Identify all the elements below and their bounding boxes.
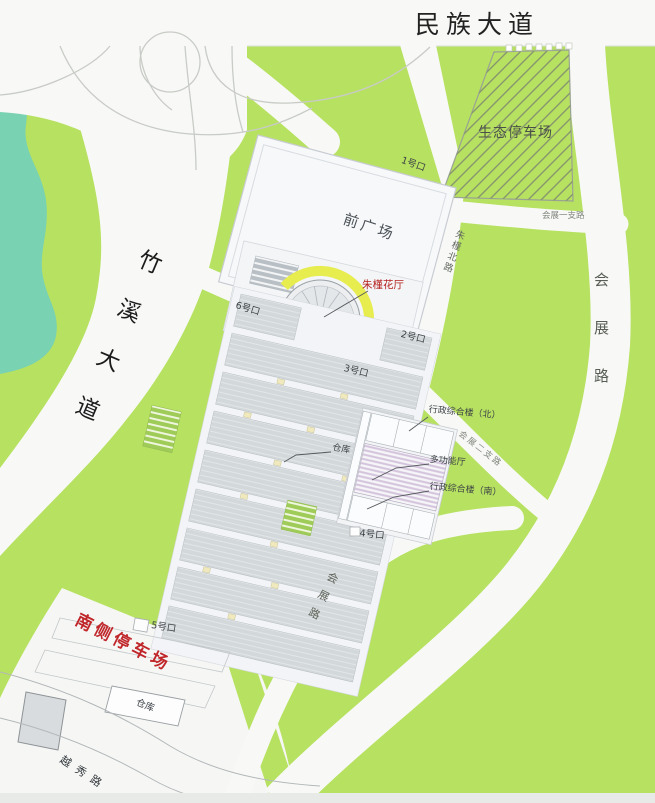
minzu-avenue-road — [0, 0, 655, 46]
bottom-road-strip — [0, 793, 655, 803]
eco-parking-label: 生态停车场 — [478, 126, 553, 140]
huizhan-branch1-label: 会展一支路 — [542, 212, 585, 221]
gate5-marker — [133, 618, 149, 632]
huizhan-branch1-road — [442, 210, 618, 224]
gate4-label: 4号口 — [359, 529, 385, 541]
hedge-east — [281, 500, 317, 536]
flower-hall-label: 朱槿花厅 — [362, 280, 404, 291]
corner-building — [18, 692, 66, 750]
site-map: 民族大道 生态停车场 会展一支路 朱槿北路 会展路 前广场 朱槿花厅 1号口 2… — [0, 0, 655, 803]
minzu-avenue-label: 民族大道 — [415, 12, 539, 37]
huizhan-road-label-east: 会展路 — [593, 272, 608, 416]
